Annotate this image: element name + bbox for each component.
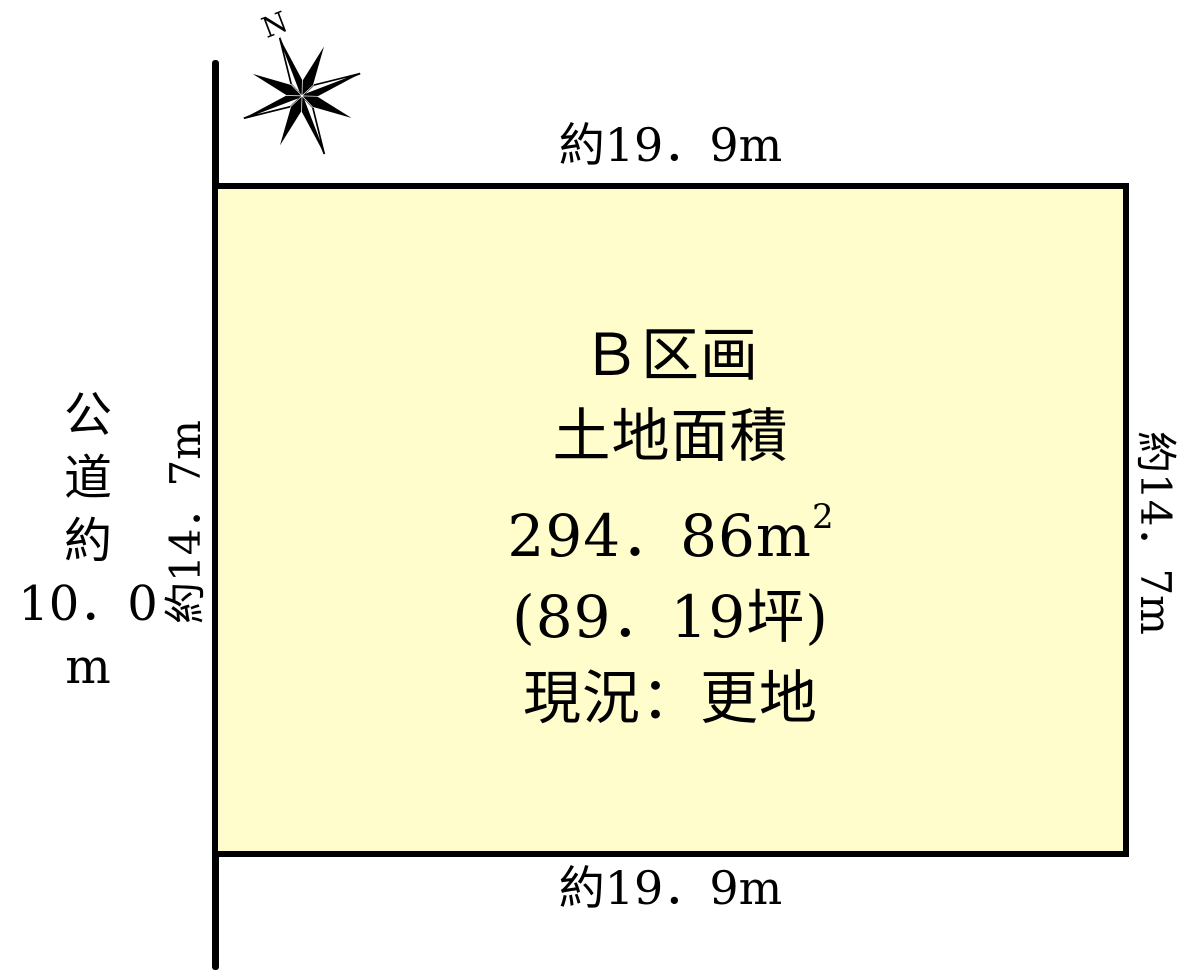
plot-area-value: 294．86m2 bbox=[507, 477, 833, 577]
dimension-bottom: 約19．9m bbox=[212, 865, 1129, 911]
road-label-char: m bbox=[65, 636, 111, 699]
road-label-char: 道 bbox=[64, 447, 112, 510]
land-plot-diagram: N 公 道 約 10．0 m Ｂ区画 土地面積 294．86m2 ( bbox=[0, 0, 1200, 972]
road-label: 公 道 約 10．0 m bbox=[18, 384, 158, 699]
dimension-left: 約14．7m bbox=[165, 420, 207, 624]
area-value-text: 294．86m bbox=[507, 502, 812, 570]
dimension-right: 約14．7m bbox=[1134, 431, 1176, 635]
plot-name: Ｂ区画 bbox=[582, 315, 759, 396]
plot-status: 現況：更地 bbox=[523, 658, 818, 739]
area-superscript: 2 bbox=[812, 497, 834, 537]
plot-area-tsubo: (89．19坪) bbox=[512, 577, 829, 658]
road-label-char: 10．0 bbox=[18, 573, 158, 636]
road-label-char: 約 bbox=[64, 510, 112, 573]
north-label: N bbox=[257, 6, 292, 45]
road-label-char: 公 bbox=[64, 384, 112, 447]
plot-area: Ｂ区画 土地面積 294．86m2 (89．19坪) 現況：更地 bbox=[212, 183, 1129, 857]
dimension-top: 約19．9m bbox=[212, 122, 1129, 168]
plot-area-title: 土地面積 bbox=[552, 396, 788, 477]
